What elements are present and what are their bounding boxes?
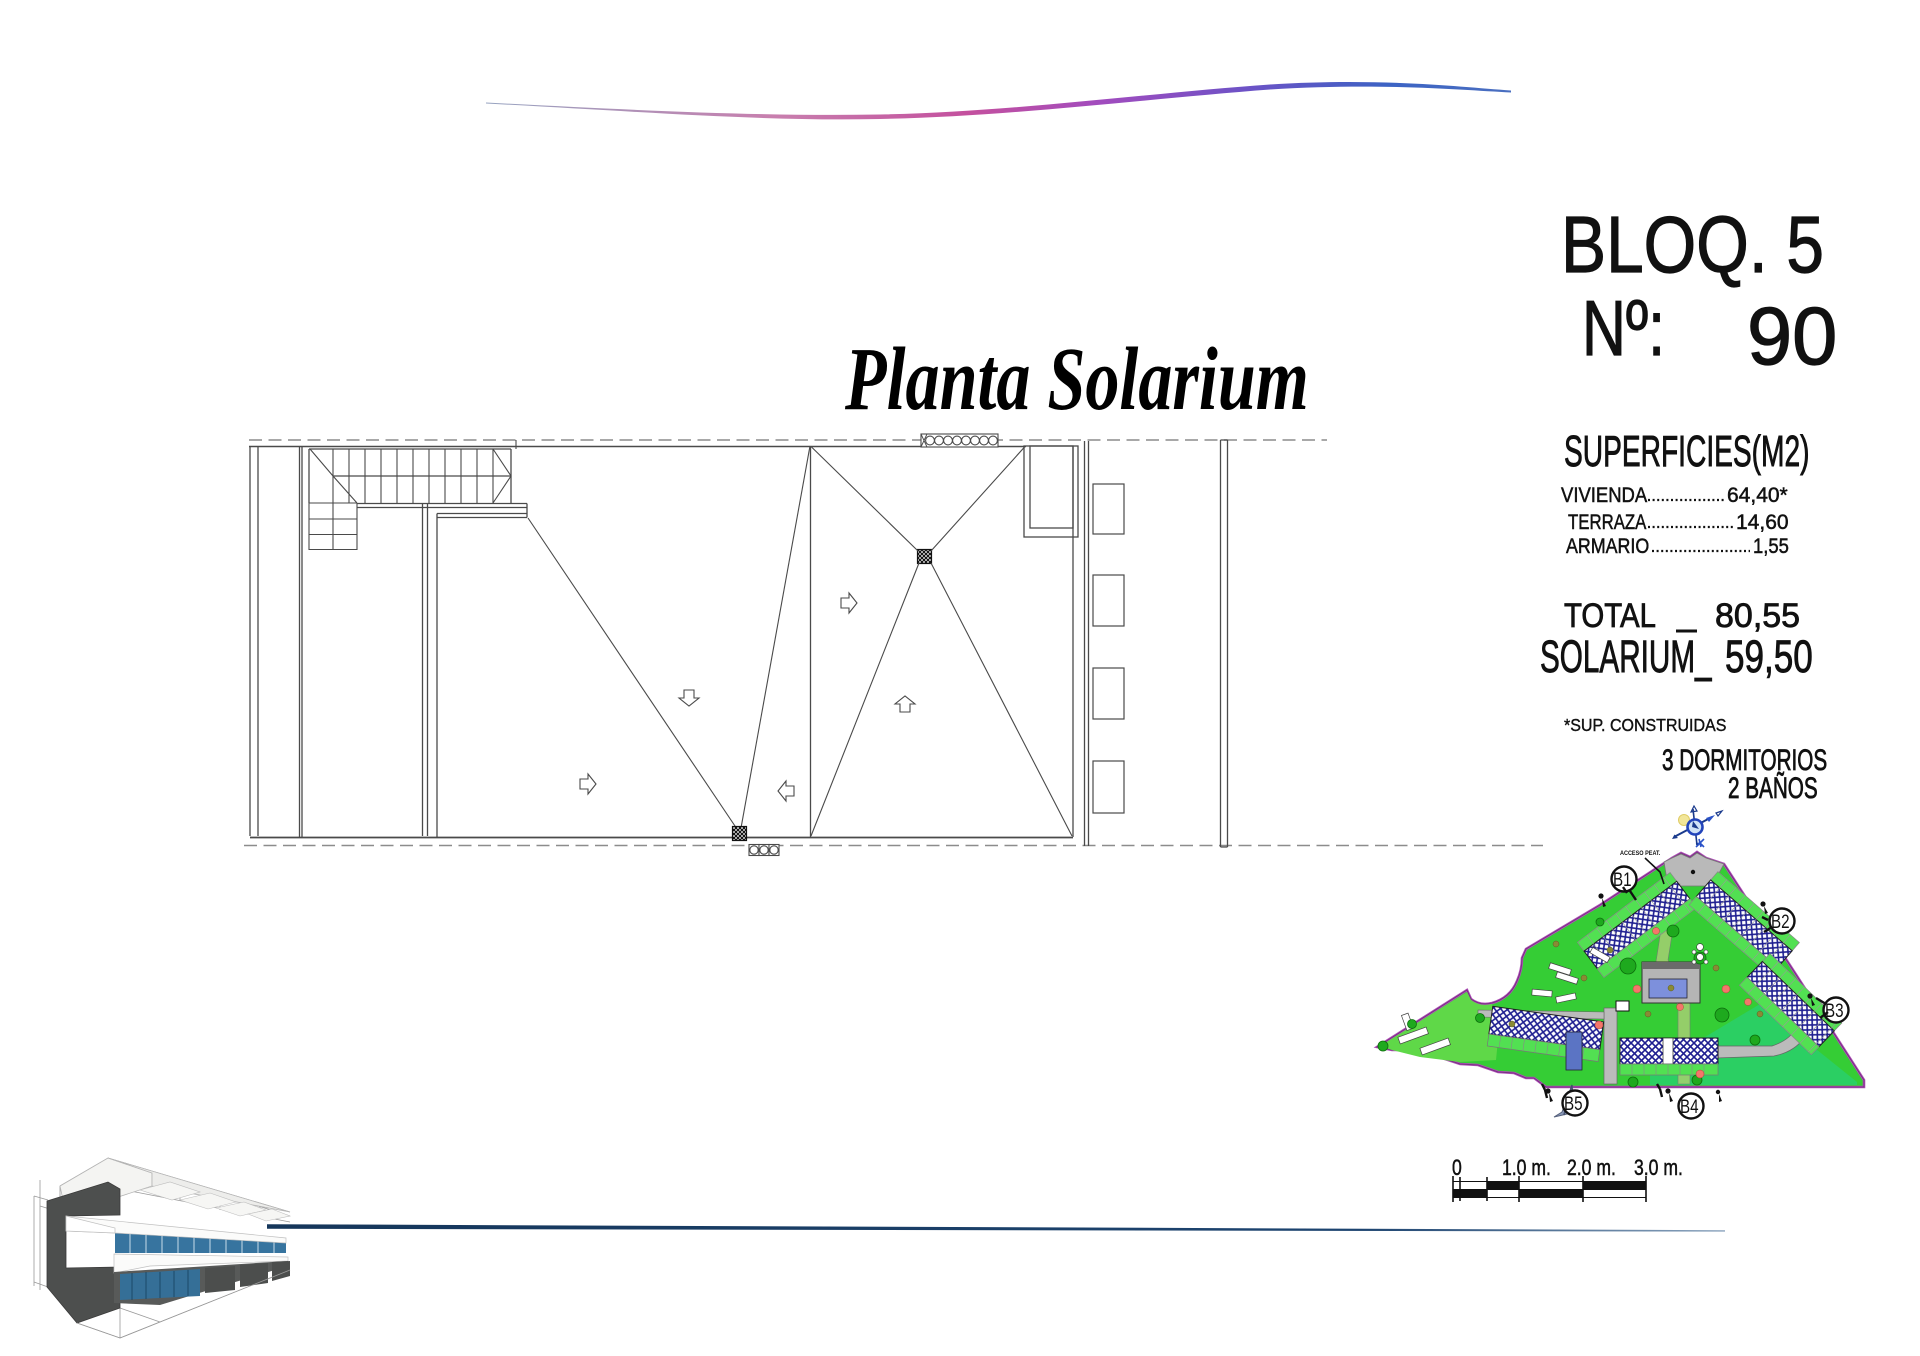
svg-text:SOLARIUM_: SOLARIUM_ (1540, 632, 1712, 683)
svg-text:80,55: 80,55 (1715, 597, 1800, 635)
svg-text:1.0 m.: 1.0 m. (1502, 1156, 1551, 1180)
svg-text:B2: B2 (1771, 910, 1790, 932)
svg-text:3.0 m.: 3.0 m. (1634, 1156, 1683, 1180)
svg-text:64,40*: 64,40* (1727, 484, 1788, 507)
svg-text:ACCESO PEAT.: ACCESO PEAT. (1620, 851, 1661, 857)
svg-text:1,55: 1,55 (1753, 535, 1789, 558)
svg-text:2 BAÑOS: 2 BAÑOS (1728, 771, 1818, 805)
svg-text:ARMARIO: ARMARIO (1566, 535, 1649, 559)
svg-text:B1: B1 (1613, 868, 1632, 890)
svg-text:Planta Solarium: Planta Solarium (844, 330, 1309, 429)
svg-text:TERRAZA: TERRAZA (1568, 511, 1647, 534)
svg-text:B5: B5 (1564, 1092, 1583, 1114)
svg-text:SUPERFICIES(M2): SUPERFICIES(M2) (1564, 427, 1810, 476)
svg-text:B4: B4 (1680, 1095, 1699, 1117)
svg-text:2.0 m.: 2.0 m. (1567, 1156, 1616, 1180)
svg-text:*SUP. CONSTRUIDAS: *SUP. CONSTRUIDAS (1564, 715, 1726, 735)
svg-text:59,50: 59,50 (1725, 631, 1813, 682)
svg-text:Nº:: Nº: (1582, 285, 1665, 372)
svg-text:B3: B3 (1825, 999, 1844, 1021)
svg-text:VIVIENDA: VIVIENDA (1561, 484, 1648, 507)
svg-text:90: 90 (1747, 291, 1837, 382)
svg-text:TOTAL: TOTAL (1564, 596, 1656, 635)
svg-text:14,60: 14,60 (1736, 511, 1789, 534)
svg-text:BLOQ. 5: BLOQ. 5 (1561, 200, 1824, 290)
